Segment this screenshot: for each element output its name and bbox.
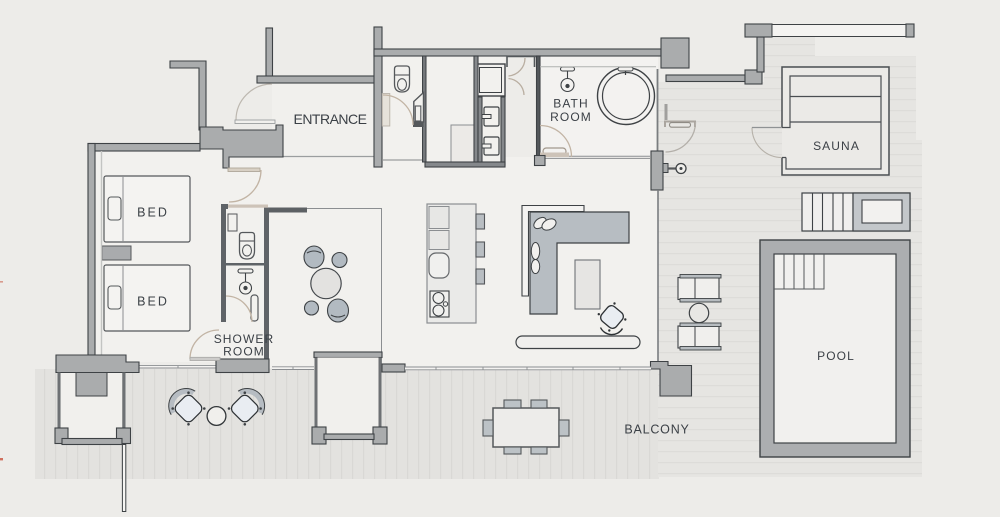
svg-text:BED: BED xyxy=(137,295,169,309)
svg-text:POOL: POOL xyxy=(817,349,855,363)
svg-text:BED: BED xyxy=(137,206,169,220)
svg-text:SAUNA: SAUNA xyxy=(813,139,860,153)
svg-text:BATH: BATH xyxy=(553,97,589,111)
svg-text:BALCONY: BALCONY xyxy=(624,423,689,437)
svg-text:ROOM: ROOM xyxy=(223,345,265,359)
svg-text:ENTRANCE: ENTRANCE xyxy=(293,111,366,127)
svg-text:ROOM: ROOM xyxy=(550,110,592,124)
